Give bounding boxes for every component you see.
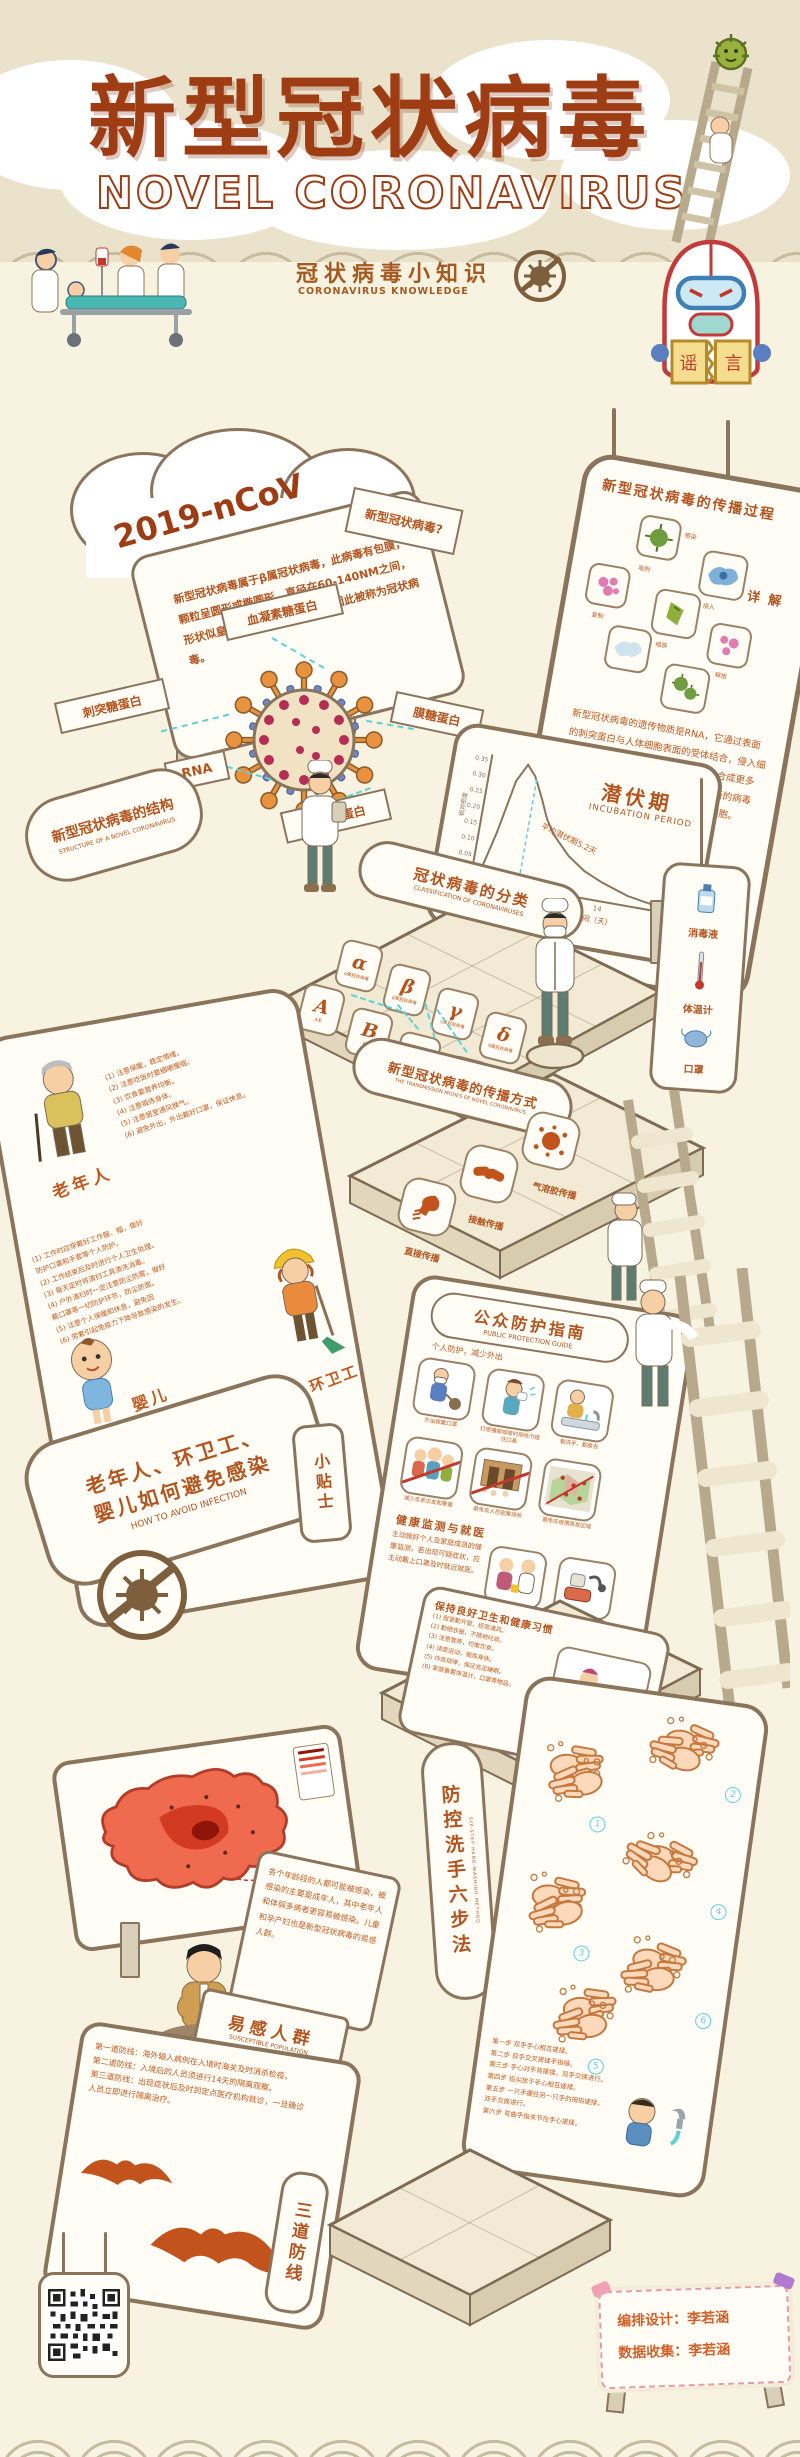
stretcher-scene-illustration	[18, 238, 238, 350]
credit-data: 数据收集：李若涵	[618, 2339, 731, 2363]
handwash-sign-zh: 防控洗手六步法	[436, 1783, 475, 1959]
tagline-en: CORONAVIRUS KNOWLEDGE	[298, 286, 538, 297]
elderly-tips: (1) 注意保暖，稳定情绪。 (2) 注意吃饭时要细嚼慢咽。 (3) 饮食要营养…	[103, 1011, 307, 1142]
svg-text:0.15: 0.15	[463, 818, 478, 827]
svg-text:谣: 谣	[680, 354, 698, 375]
sanitation-worker-figure	[251, 1235, 352, 1377]
structure-sign: 新型冠状病毒的结构 STRUCTURE OF A NOVEL CORONAVIR…	[16, 759, 213, 891]
supplies-tag: 消毒液 体温计 口罩	[648, 861, 752, 1095]
page-title: 新型冠状病毒	[88, 48, 708, 175]
guide-item: 勤洗手，勤换衣	[547, 1377, 620, 1460]
genus-letter: β	[399, 975, 417, 999]
guide-item: 避免去人员密集场所	[466, 1446, 538, 1522]
spread-step-label: 感染	[684, 531, 698, 543]
svg-text:0.10: 0.10	[461, 833, 476, 842]
handshake-icon	[468, 1155, 510, 1193]
guide-item: 外出佩戴口罩	[408, 1355, 481, 1438]
tips-badge: 小贴士	[291, 1422, 353, 1544]
supplies-hanger	[700, 778, 703, 870]
spread-step-cell	[697, 549, 750, 602]
guide-item: 减少走亲访友和聚餐	[397, 1435, 469, 1511]
bottom-platform	[320, 2130, 620, 2340]
map-board-leg	[120, 1922, 140, 1978]
svg-text:0.35: 0.35	[475, 755, 490, 764]
svg-text:言: 言	[725, 354, 743, 375]
spread-step-label: 吸附	[637, 564, 651, 576]
mask-icon	[677, 1025, 715, 1051]
supply-label-thermometer: 体温计	[682, 1000, 713, 1017]
wave-pattern-bottom	[0, 2384, 800, 2457]
spread-step-label: 释放	[714, 671, 728, 683]
credit-design: 编排设计：李若涵	[617, 2307, 730, 2331]
hazmat-rumor-illustration: 谣 言	[636, 236, 786, 416]
handwash-steps-text: 第一步 双手手心相互搓揉。 第二步 双手交叉搓揉手指缝。 第三步 手心对手背搓揉…	[482, 2036, 612, 2134]
spread-step-label: 组装	[654, 640, 668, 652]
svg-text:0.20: 0.20	[466, 802, 481, 811]
spread-step-newvirus	[658, 662, 711, 715]
guide-item: 打喷嚏或咳嗽时用纸巾捂住口鼻	[478, 1366, 551, 1449]
lineage-caption: A系	[314, 1017, 323, 1025]
cough-icon	[406, 1186, 447, 1227]
thermometer-icon	[693, 950, 708, 991]
elderly-figure	[13, 1050, 115, 1173]
genus-letter: δ	[495, 1023, 513, 1047]
spread-step-pink1	[583, 561, 632, 610]
susceptible-text: 各个年龄段的人都可能被感染，被感染的主要是成年人，其中老年人和体弱多病者更容易被…	[254, 1864, 387, 1963]
defense-sign-text: 三道防线	[278, 2199, 316, 2286]
genus-letter: γ	[447, 999, 464, 1023]
spread-step-replicate	[649, 587, 702, 640]
svg-text:0.25: 0.25	[469, 786, 484, 795]
spread-step-label: 侵入	[702, 602, 716, 614]
svg-text:平均潜伏期5.2天: 平均潜伏期5.2天	[539, 821, 598, 857]
aerosol-virus-icon	[530, 1120, 571, 1161]
poster: 新型冠状病毒 NOVEL CORONAVIRUS 冠状病毒小知识 CORONAV…	[0, 0, 800, 2457]
guide-item: 避免去疫情高发区域	[535, 1457, 607, 1533]
disinfectant-icon	[691, 880, 719, 916]
label-spike: 刺突糖蛋白	[54, 678, 170, 734]
qr-code	[48, 2289, 120, 2361]
spread-step-virus	[635, 514, 684, 563]
page-subtitle: NOVEL CORONAVIRUS	[96, 168, 716, 219]
tagline-zh: 冠状病毒小知识	[296, 256, 526, 288]
svg-text:0.30: 0.30	[472, 770, 487, 779]
supply-label-disinfectant: 消毒液	[688, 924, 719, 941]
spread-title: 新型冠状病毒的传播过程	[601, 474, 800, 531]
ladder-virus-illustration	[628, 34, 768, 244]
spread-detail-title: 详 解	[746, 585, 785, 610]
spread-step-pink2	[705, 621, 754, 670]
map-legend	[292, 1742, 335, 1800]
no-virus-badge-icon	[92, 1545, 192, 1645]
no-virus-stamp-icon	[512, 248, 568, 304]
qr-tag	[38, 2272, 130, 2378]
defense-text: 第一道防线：海外输入病例在入境时海关及时消杀检疫。 第二道防线：入境后的人员须进…	[87, 2040, 309, 2129]
supply-label-mask: 口罩	[683, 1060, 704, 1076]
spread-step-release	[603, 624, 654, 675]
spread-step-label: 复制	[591, 610, 605, 622]
tips-badge-text: 小贴士	[307, 1452, 336, 1514]
